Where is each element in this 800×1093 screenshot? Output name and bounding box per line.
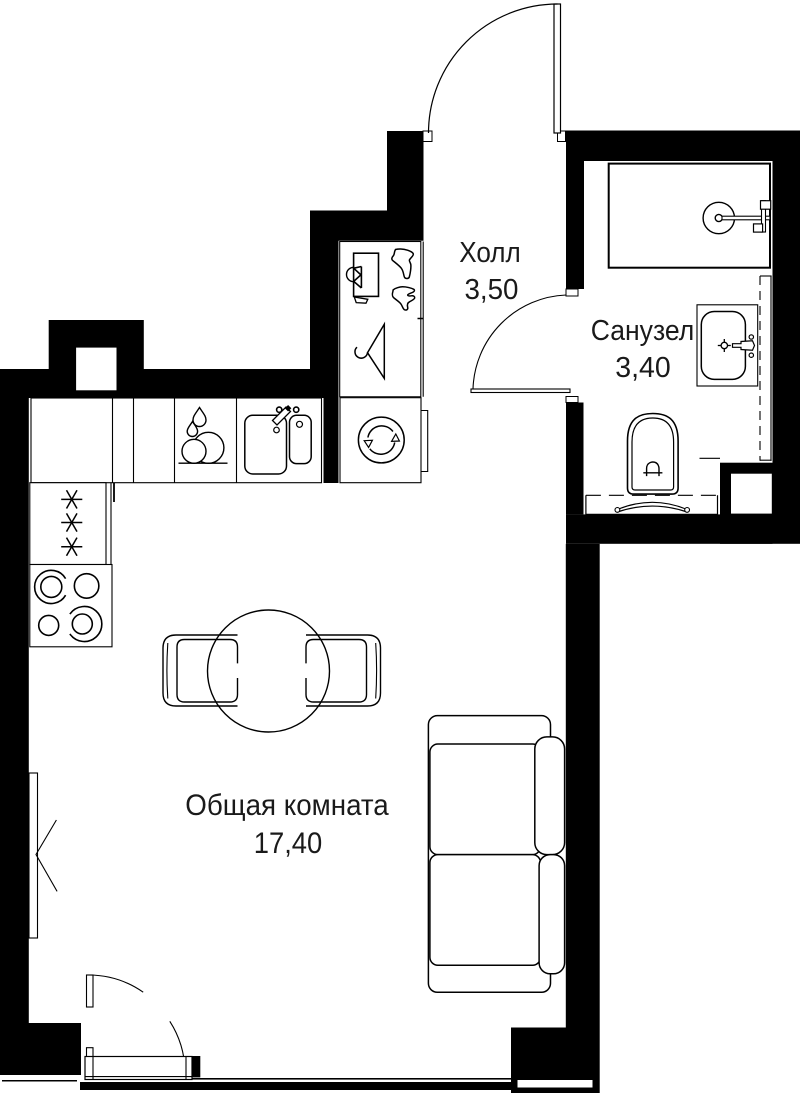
svg-text:3,50: 3,50 [465,274,519,306]
svg-text:Общая комната: Общая комната [185,789,389,822]
svg-text:Санузел: Санузел [591,315,695,347]
svg-text:3,40: 3,40 [615,352,671,384]
svg-text:Холл: Холл [459,237,521,269]
svg-text:17,40: 17,40 [254,827,323,860]
